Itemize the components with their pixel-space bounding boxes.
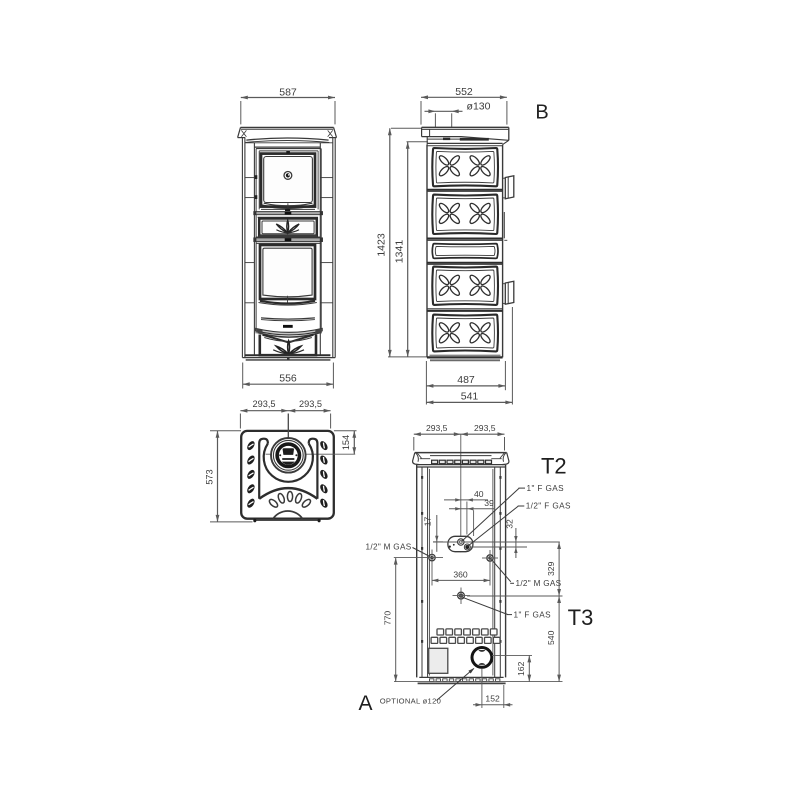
svg-text:587: 587 [279, 86, 297, 98]
svg-text:1/2" M GAS: 1/2" M GAS [366, 542, 412, 551]
svg-text:162: 162 [516, 661, 526, 676]
svg-text:1" F GAS: 1" F GAS [527, 484, 565, 493]
svg-text:1423: 1423 [376, 233, 388, 257]
svg-text:293,5: 293,5 [426, 423, 448, 433]
svg-text:329: 329 [546, 561, 556, 576]
svg-text:293,5: 293,5 [474, 423, 496, 433]
svg-text:1/2" M GAS: 1/2" M GAS [516, 579, 562, 588]
svg-text:32: 32 [504, 519, 514, 529]
svg-text:154: 154 [341, 435, 351, 450]
svg-text:152: 152 [485, 694, 500, 704]
svg-text:293,5: 293,5 [253, 399, 276, 409]
svg-text:39: 39 [484, 498, 494, 508]
svg-text:40: 40 [474, 489, 484, 499]
svg-text:573: 573 [204, 469, 214, 484]
svg-text:540: 540 [546, 630, 556, 645]
svg-text:487: 487 [457, 374, 475, 386]
svg-text:541: 541 [461, 390, 479, 402]
svg-text:770: 770 [382, 611, 392, 626]
svg-text:556: 556 [279, 372, 297, 384]
svg-text:1/2" F GAS: 1/2" F GAS [526, 502, 571, 511]
svg-text:293,5: 293,5 [299, 399, 322, 409]
svg-text:OPTIONAL ø120: OPTIONAL ø120 [380, 697, 441, 706]
svg-text:T2: T2 [541, 454, 567, 479]
svg-text:17: 17 [423, 517, 433, 527]
svg-text:A: A [358, 692, 372, 715]
svg-text:ø130: ø130 [467, 100, 491, 112]
svg-text:T3: T3 [568, 605, 594, 630]
svg-text:B: B [535, 102, 548, 124]
svg-text:552: 552 [455, 86, 473, 98]
svg-text:1" F GAS: 1" F GAS [514, 610, 552, 619]
svg-text:1341: 1341 [393, 240, 405, 264]
svg-text:360: 360 [453, 570, 468, 580]
